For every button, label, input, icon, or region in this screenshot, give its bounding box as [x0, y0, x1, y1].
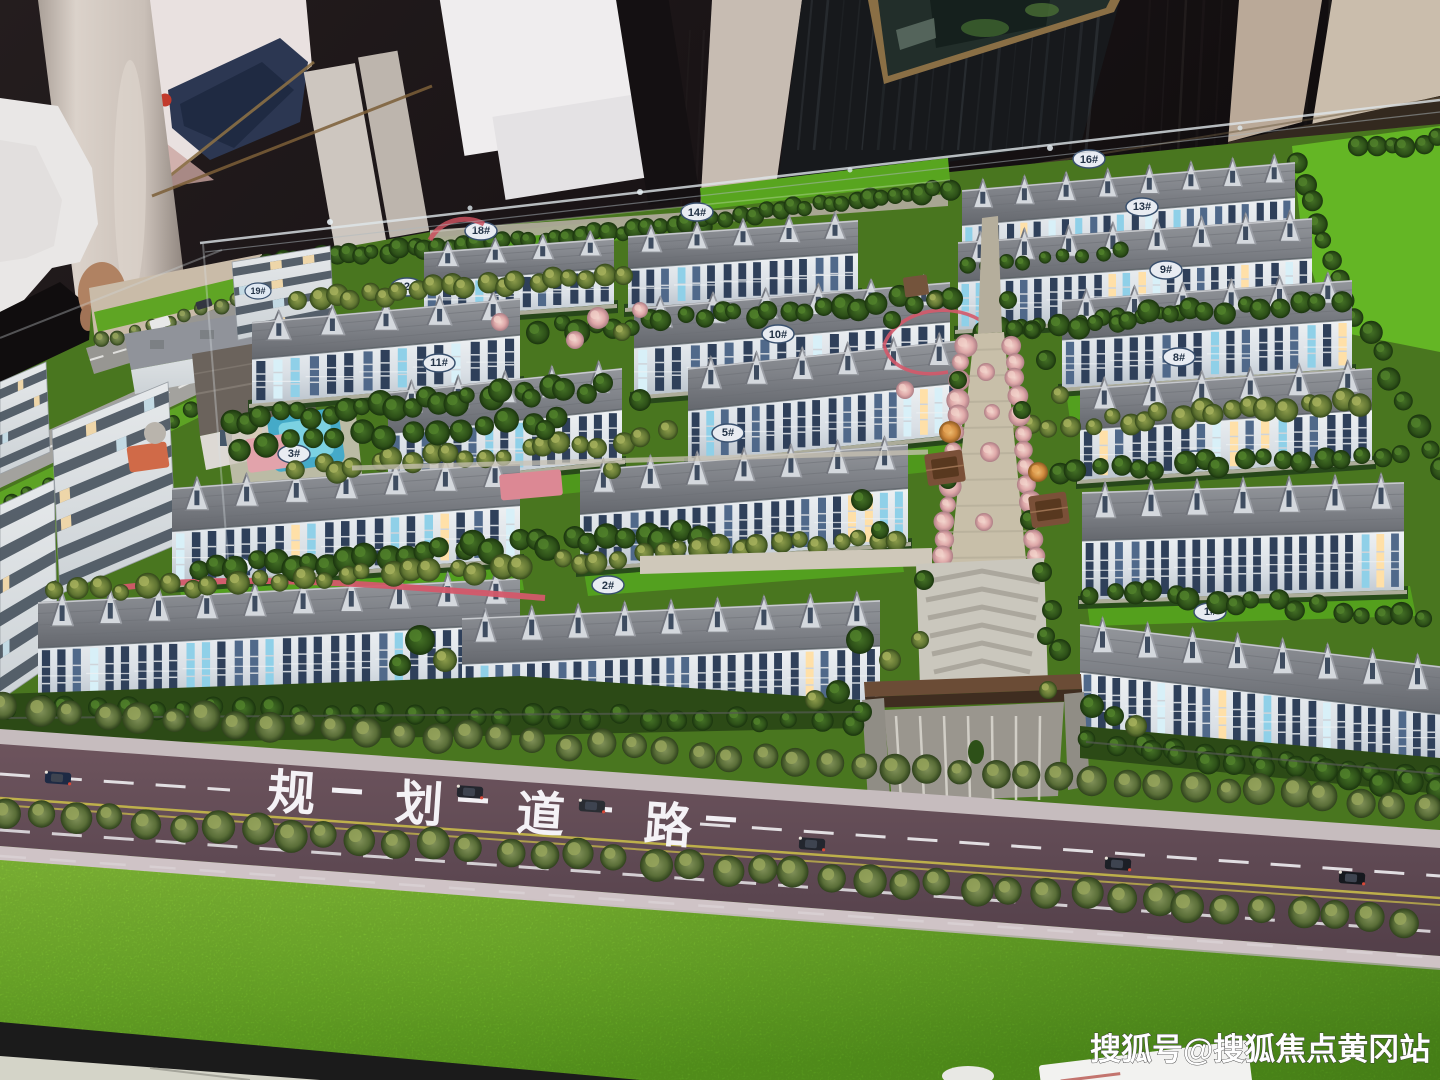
svg-text:16#: 16#	[1080, 154, 1098, 166]
svg-text:13#: 13#	[1133, 201, 1151, 213]
svg-text:8#: 8#	[1173, 352, 1185, 364]
svg-text:2#: 2#	[602, 580, 614, 592]
svg-text:道: 道	[515, 787, 567, 843]
svg-text:9#: 9#	[1160, 264, 1172, 276]
svg-text:路: 路	[642, 798, 695, 854]
svg-text:10#: 10#	[769, 329, 787, 341]
svg-text:搜狐号@搜狐焦点黄冈站: 搜狐号@搜狐焦点黄冈站	[1090, 1032, 1430, 1067]
svg-text:3#: 3#	[288, 448, 300, 460]
svg-text:5#: 5#	[722, 427, 734, 439]
svg-text:划: 划	[393, 777, 445, 833]
svg-text:14#: 14#	[688, 207, 706, 219]
svg-text:11#: 11#	[430, 357, 448, 369]
svg-text:规: 规	[266, 766, 318, 822]
svg-text:19#: 19#	[250, 286, 265, 296]
